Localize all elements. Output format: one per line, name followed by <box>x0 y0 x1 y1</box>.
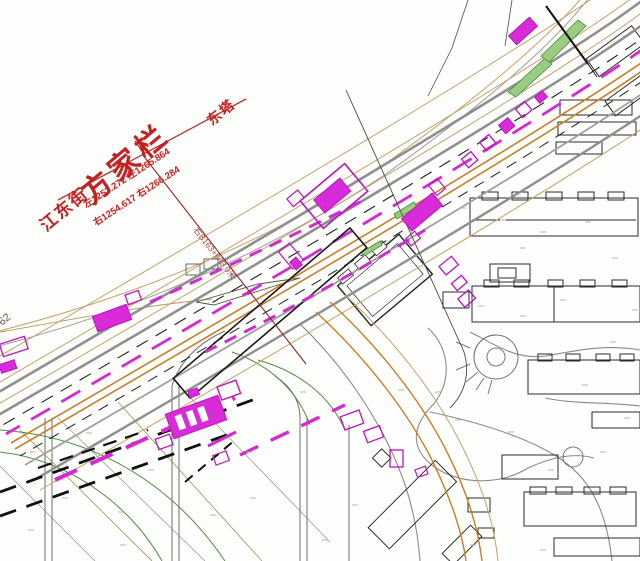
parcel-lines <box>0 0 592 561</box>
buildings-west-small <box>186 259 300 305</box>
station-box <box>173 228 367 398</box>
partial-road-label: 62 <box>0 311 13 328</box>
tower-label: 东塔 <box>204 95 239 128</box>
street-name-label: 江东街 <box>36 183 93 235</box>
branch-road-south <box>316 295 498 561</box>
main-road-corridor <box>0 0 640 490</box>
buildings-bottom-center <box>368 449 482 561</box>
buildings-east <box>443 26 640 556</box>
section-mark <box>546 6 597 77</box>
site-plan-canvas: 方家栏 江东街 左1253.272 左1265.864 右1254.617 右1… <box>0 0 640 561</box>
